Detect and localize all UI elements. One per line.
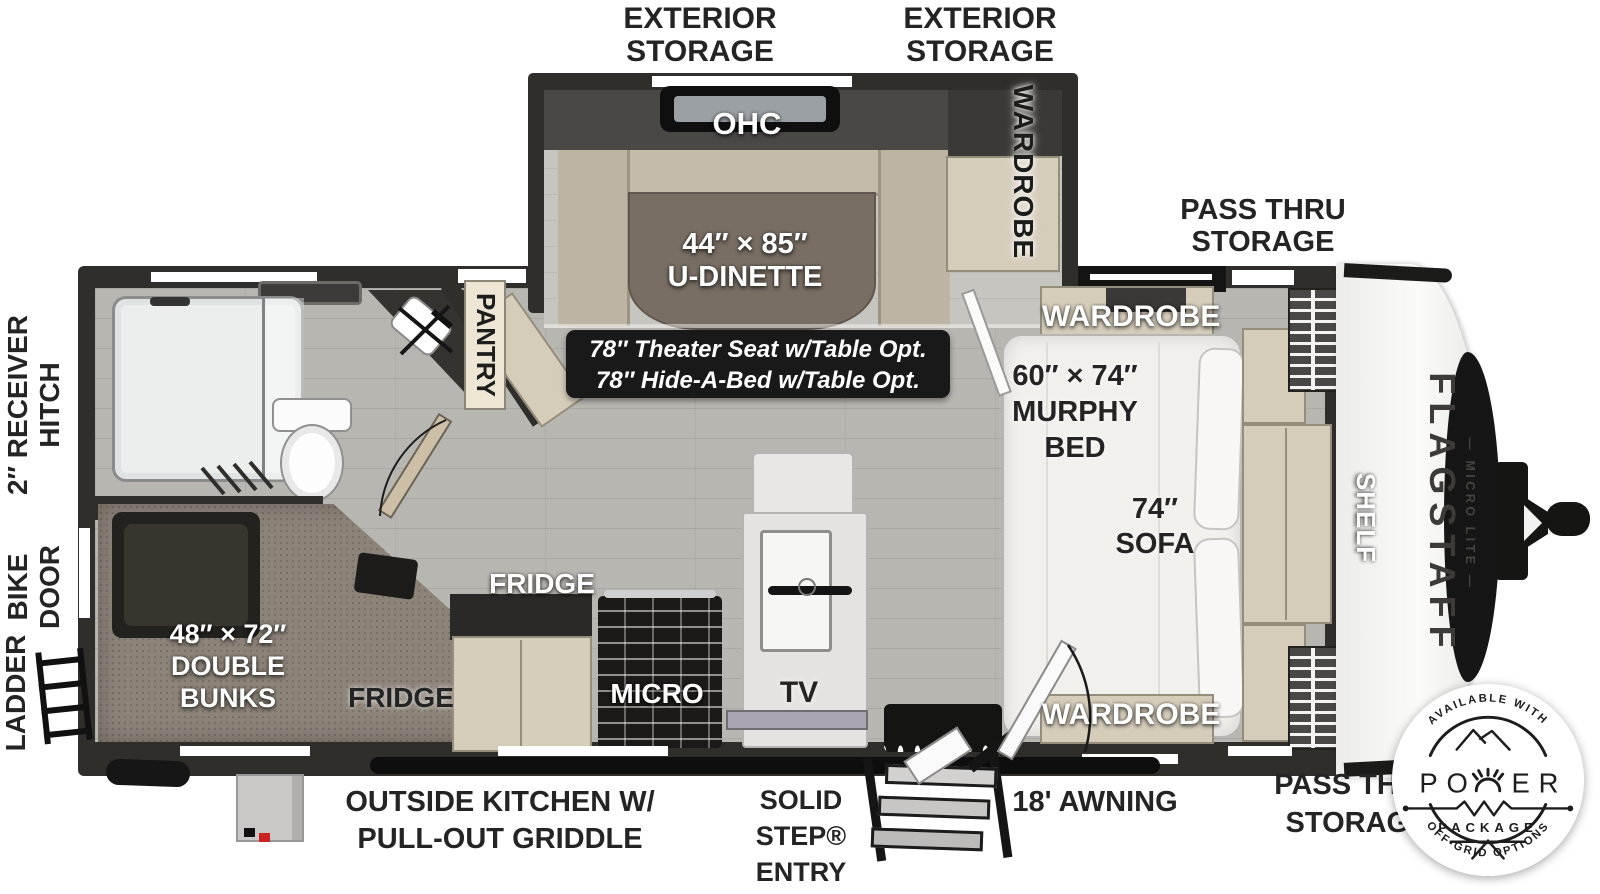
pleated-shower-door xyxy=(202,462,272,494)
label-line: SOFA xyxy=(1095,527,1215,562)
floorplan-canvas: EXTERIOR STORAGE EXTERIOR STORAGE PASS T… xyxy=(0,0,1600,894)
shelf-label: SHELF xyxy=(1351,463,1381,573)
wardrobe-bottom-label: WARDROBE xyxy=(1042,698,1218,732)
awning-label: 18' AWNING xyxy=(1000,786,1190,819)
ohc-label: OHC xyxy=(700,106,794,142)
exterior-storage-label-2: EXTERIOR STORAGE xyxy=(880,2,1080,68)
fridge-interior-label: FRIDGE xyxy=(482,568,602,600)
label-line: HITCH xyxy=(34,300,66,510)
micro-label: MICRO xyxy=(602,678,712,710)
label-line: U-DINETTE xyxy=(640,261,850,294)
label-line: BUNKS xyxy=(128,682,328,714)
fridge-exterior-label: FRIDGE xyxy=(336,682,466,714)
double-bunks-label: 48″ × 72″ DOUBLE BUNKS xyxy=(128,618,328,714)
label-line: MURPHY xyxy=(1000,394,1150,430)
label-line: 74″ xyxy=(1095,492,1215,527)
badge-power-left: PO xyxy=(1419,768,1476,799)
solid-step-entry-label: SOLID STEP® ENTRY xyxy=(745,782,857,890)
label-line: OUTSIDE KITCHEN W/ xyxy=(320,784,680,821)
line-dot xyxy=(1403,805,1409,811)
label-line: ENTRY xyxy=(745,854,857,890)
label-line: STEP® xyxy=(745,818,857,854)
ladder-label: LADDER xyxy=(0,628,32,758)
label-line: 60″ × 74″ xyxy=(1000,358,1150,394)
badge-package-text: PACKAGE xyxy=(1438,820,1537,835)
badge-power-right: ER xyxy=(1512,768,1568,799)
label-line: 44″ × 85″ xyxy=(640,228,850,261)
bathroom-door xyxy=(379,414,451,517)
receiver-hitch-label: 2″ RECEIVER HITCH xyxy=(2,300,66,510)
label-line: PASS THRU xyxy=(1168,194,1358,226)
power-package-badge: AVAILABLE WITH PO ER PACKAGE OFF-GRID OP… xyxy=(1390,682,1586,878)
tv-label: TV xyxy=(764,676,834,710)
exterior-storage-label-1: EXTERIOR STORAGE xyxy=(600,2,800,68)
theater-option-badge: 78″ Theater Seat w/Table Opt. 78″ Hide-A… xyxy=(566,330,950,398)
pass-thru-storage-top-label: PASS THRU STORAGE xyxy=(1168,194,1358,258)
pantry-label: PANTRY xyxy=(471,279,501,411)
label-line: EXTERIOR xyxy=(600,2,800,35)
label-line: PULL-OUT GRIDDLE xyxy=(320,821,680,858)
label-line: EXTERIOR xyxy=(880,2,1080,35)
label-line: STORAGE xyxy=(600,35,800,68)
label-line: STORAGE xyxy=(1168,226,1358,258)
brand-series: — MICRO LITE — xyxy=(1459,424,1477,604)
label-line: STORAGE xyxy=(880,35,1080,68)
door-overlay xyxy=(0,0,1600,894)
murphy-bed-label: 60″ × 74″ MURPHY BED xyxy=(1000,358,1150,466)
brand-logo: FLAGSTAFF xyxy=(1419,364,1463,664)
label-line: DOOR xyxy=(34,517,66,657)
label-line: 78″ Theater Seat w/Table Opt. xyxy=(566,334,950,365)
outside-kitchen-label: OUTSIDE KITCHEN W/ PULL-OUT GRIDDLE xyxy=(320,784,680,858)
label-line: 2″ RECEIVER xyxy=(2,300,34,510)
sofa-label: 74″ SOFA xyxy=(1095,492,1215,562)
wardrobe-top-label: WARDROBE xyxy=(1042,300,1218,334)
u-dinette-label: 44″ × 85″ U-DINETTE xyxy=(640,228,850,294)
label-line: SOLID xyxy=(745,782,857,818)
label-line: BED xyxy=(1000,430,1150,466)
label-line: 78″ Hide-A-Bed w/Table Opt. xyxy=(566,365,950,396)
label-line: DOUBLE xyxy=(128,650,328,682)
label-line: 48″ × 72″ xyxy=(128,618,328,650)
line-dot xyxy=(1567,805,1573,811)
slide-wardrobe-label: WARDROBE xyxy=(1005,82,1039,262)
